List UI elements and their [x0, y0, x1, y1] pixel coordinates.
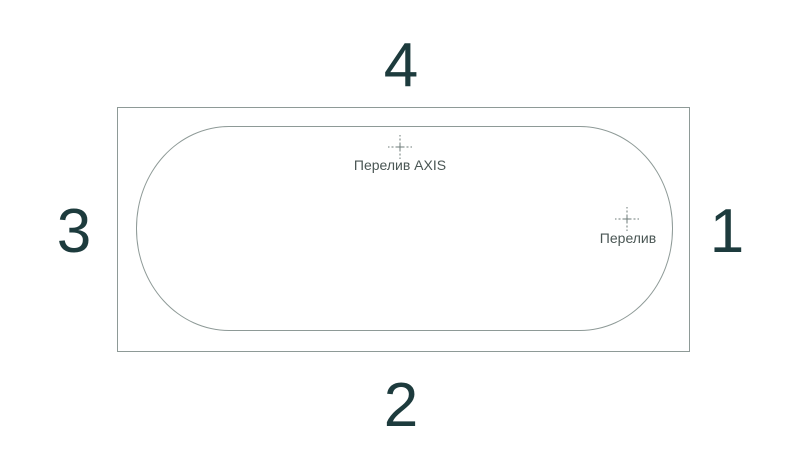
- overflow-label: Перелив: [600, 230, 656, 247]
- side-number-right: 1: [710, 201, 744, 263]
- center-mark-icon: [388, 135, 412, 159]
- side-number-left: 3: [57, 201, 91, 263]
- center-mark-icon: [615, 207, 639, 231]
- overflow-axis-label: Перелив AXIS: [354, 157, 446, 174]
- side-number-bottom: 2: [384, 375, 418, 437]
- bathtub-top-view-diagram: 4 2 3 1 Перелив AXIS Перелив: [0, 0, 800, 464]
- side-number-top: 4: [384, 35, 418, 97]
